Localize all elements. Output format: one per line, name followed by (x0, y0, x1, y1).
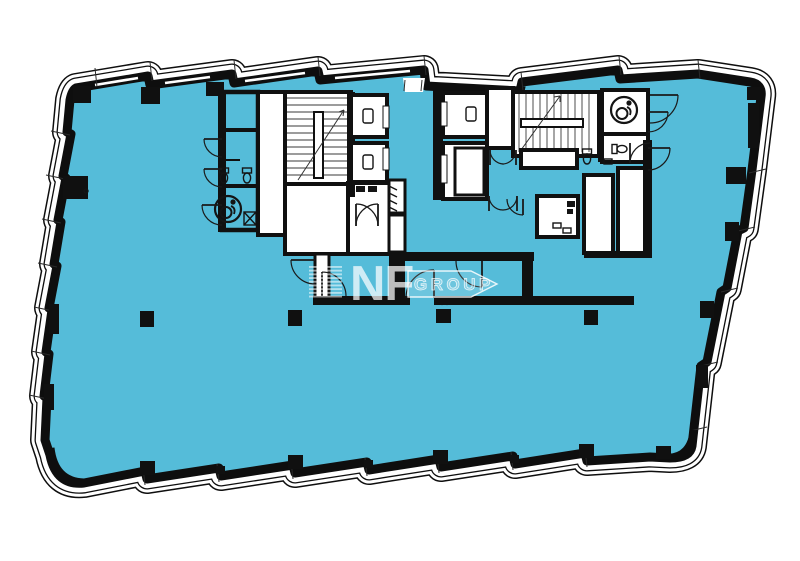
core-landing-1 (285, 184, 351, 254)
elevator-bank-2 (433, 90, 487, 200)
stair-1 (285, 92, 351, 184)
elevator-bank-1 (347, 92, 389, 197)
floor-plan-svg: NF GROUP (0, 0, 800, 561)
elevator-car-icon (455, 148, 484, 195)
accessible-wc-east (598, 90, 648, 162)
core-landing-2 (487, 88, 513, 148)
floor-plan-page: NF GROUP (0, 0, 800, 561)
top-wall-glazing-gap (403, 78, 425, 92)
vent-shaft (389, 180, 405, 252)
watermark-brand-text: NF (350, 257, 413, 311)
watermark-suffix-text: GROUP (414, 275, 494, 294)
stair-2 (513, 92, 599, 156)
core-corridor (258, 92, 285, 235)
nf-logo-stripes-icon (309, 266, 342, 298)
